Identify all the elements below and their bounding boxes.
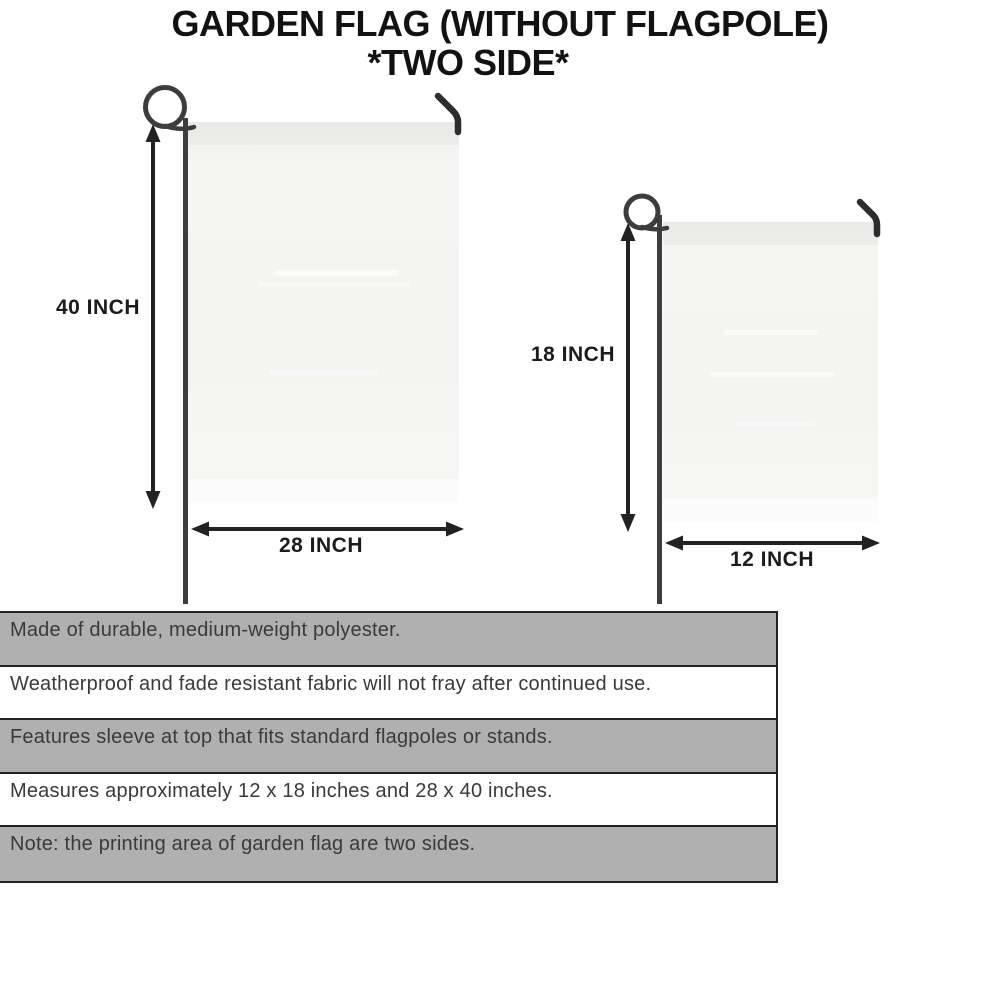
feature-row: Weatherproof and fade resistant fabric w… — [0, 667, 776, 721]
feature-row: Made of durable, medium-weight polyester… — [0, 613, 776, 667]
title-block: GARDEN FLAG (WITHOUT FLAGPOLE) *TWO SIDE… — [0, 4, 1000, 82]
page-subtitle: *TWO SIDE* — [0, 44, 936, 82]
large-flag-width-label: 28 INCH — [221, 534, 421, 558]
shepherd-hook-flagpole-icon — [626, 196, 667, 604]
small-flag — [663, 222, 878, 523]
small-flag-height-label: 18 INCH — [513, 343, 615, 367]
shepherd-hook-flagpole-icon — [146, 88, 195, 605]
fold-crease — [275, 270, 400, 276]
large-flag — [188, 122, 459, 503]
small-flag-sleeve — [663, 222, 878, 245]
double-headed-arrow-icon — [146, 124, 161, 509]
garden-flag-infographic: GARDEN FLAG (WITHOUT FLAGPOLE) *TWO SIDE… — [0, 0, 1000, 1000]
fold-crease — [269, 370, 377, 375]
feature-row: Note: the printing area of garden flag a… — [0, 827, 776, 881]
large-flag-height-label: 40 INCH — [38, 296, 140, 320]
small-flag-width-label: 12 INCH — [672, 548, 872, 572]
page-title: GARDEN FLAG (WITHOUT FLAGPOLE) — [0, 4, 1000, 44]
fold-crease — [710, 372, 835, 377]
large-flag-sleeve — [188, 122, 459, 145]
small-flag-hem — [663, 499, 878, 523]
feature-row: Features sleeve at top that fits standar… — [0, 720, 776, 774]
fold-crease — [258, 282, 410, 287]
fold-crease — [736, 422, 813, 426]
fold-crease — [723, 330, 818, 335]
large-flag-hem — [188, 479, 459, 503]
feature-row: Measures approximately 12 x 18 inches an… — [0, 774, 776, 828]
feature-table: Made of durable, medium-weight polyester… — [0, 611, 778, 883]
double-headed-arrow-icon — [621, 223, 636, 532]
